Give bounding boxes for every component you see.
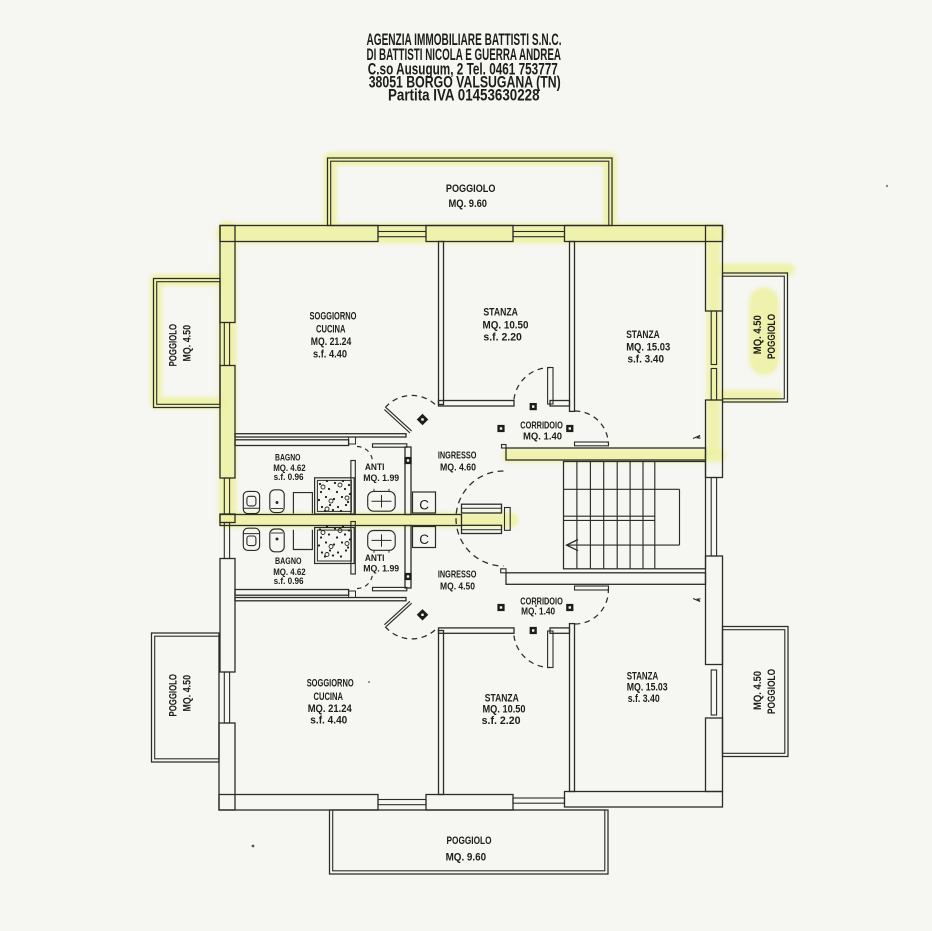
- svg-text:MQ. 4.50: MQ. 4.50: [182, 675, 194, 712]
- svg-text:MQ. 15.03: MQ. 15.03: [627, 682, 668, 694]
- svg-text:POGGIOLO: POGGIOLO: [766, 669, 778, 714]
- svg-text:C: C: [419, 532, 429, 547]
- svg-text:ANTI: ANTI: [365, 553, 385, 564]
- svg-text:CORRIDOIO: CORRIDOIO: [520, 421, 563, 432]
- svg-text:BAGNO: BAGNO: [275, 556, 302, 567]
- svg-text:POGGIOLO: POGGIOLO: [446, 183, 496, 195]
- svg-text:Partita IVA 01453630228: Partita IVA 01453630228: [388, 86, 540, 105]
- svg-text:MQ. 10.50: MQ. 10.50: [483, 704, 526, 716]
- svg-text:MQ. 15.03: MQ. 15.03: [626, 342, 670, 354]
- svg-text:MQ. 1.40: MQ. 1.40: [521, 607, 555, 618]
- svg-text:s.f. 0.96: s.f. 0.96: [274, 472, 304, 483]
- svg-text:SOGGIORNO: SOGGIORNO: [310, 311, 357, 323]
- svg-text:s.f. 4.40: s.f. 4.40: [310, 715, 347, 727]
- svg-text:MQ. 10.50: MQ. 10.50: [483, 320, 529, 332]
- svg-text:MQ. 21.24: MQ. 21.24: [311, 336, 352, 348]
- svg-text:CUCINA: CUCINA: [314, 691, 344, 703]
- svg-text:MQ. 4.50: MQ. 4.50: [440, 582, 475, 593]
- svg-text:s.f. 2.20: s.f. 2.20: [483, 332, 522, 344]
- svg-text:MQ. 1.99: MQ. 1.99: [363, 564, 399, 575]
- svg-text:MQ. 21.24: MQ. 21.24: [308, 703, 352, 715]
- svg-text:s.f. 3.40: s.f. 3.40: [628, 693, 660, 705]
- svg-text:ANTI: ANTI: [365, 462, 385, 473]
- svg-text:MQ. 9.60: MQ. 9.60: [449, 198, 488, 210]
- svg-text:s.f. 2.20: s.f. 2.20: [482, 715, 521, 727]
- svg-text:STANZA: STANZA: [483, 307, 518, 319]
- svg-text:s.f. 0.96: s.f. 0.96: [274, 576, 304, 587]
- svg-text:MQ. 4.60: MQ. 4.60: [440, 463, 476, 474]
- svg-text:SOGGIORNO: SOGGIORNO: [307, 678, 354, 690]
- svg-text:MQ. 4.50: MQ. 4.50: [752, 671, 764, 710]
- svg-text:MQ. 1.99: MQ. 1.99: [363, 473, 399, 484]
- svg-text:POGGIOLO: POGGIOLO: [168, 324, 180, 367]
- svg-text:POGGIOLO: POGGIOLO: [447, 835, 492, 847]
- svg-text:POGGIOLO: POGGIOLO: [766, 314, 778, 359]
- svg-text:INGRESSO: INGRESSO: [438, 570, 477, 581]
- svg-text:MQ. 9.60: MQ. 9.60: [446, 852, 487, 864]
- svg-text:C: C: [419, 498, 429, 513]
- svg-text:POGGIOLO: POGGIOLO: [168, 674, 180, 717]
- svg-text:MQ. 1.40: MQ. 1.40: [523, 432, 562, 443]
- svg-text:BAGNO: BAGNO: [275, 453, 301, 464]
- svg-text:s.f. 4.40: s.f. 4.40: [313, 349, 347, 361]
- svg-text:MQ. 4.50: MQ. 4.50: [182, 325, 194, 362]
- svg-text:STANZA: STANZA: [626, 329, 660, 341]
- svg-text:CUCINA: CUCINA: [316, 324, 346, 336]
- svg-text:MQ. 4.50: MQ. 4.50: [752, 315, 764, 354]
- svg-text:s.f. 3.40: s.f. 3.40: [628, 354, 665, 366]
- svg-text:INGRESSO: INGRESSO: [438, 451, 477, 462]
